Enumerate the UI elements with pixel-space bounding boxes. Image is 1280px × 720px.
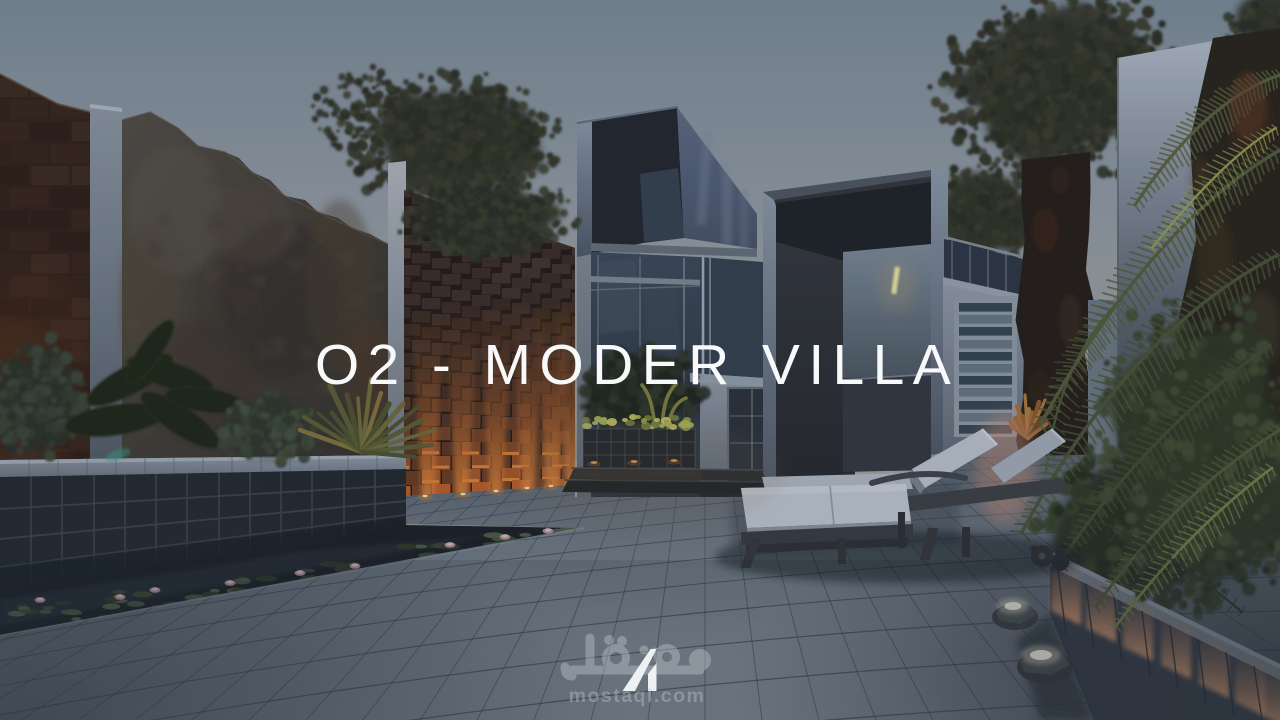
svg-text:O2 - MODER VILLA: O2 - MODER VILLA xyxy=(315,333,959,397)
svg-text:mostaql.com: mostaql.com xyxy=(569,685,706,707)
